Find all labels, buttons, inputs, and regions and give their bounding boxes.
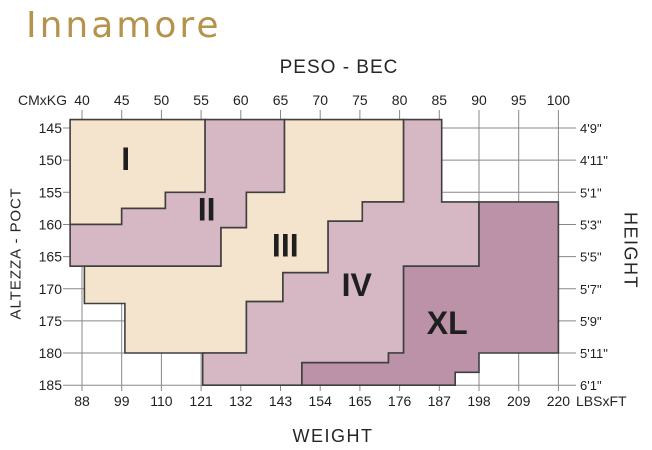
top-tick-label-45: 45 bbox=[114, 92, 130, 108]
bottom-axis-unit-label: LBSxFT bbox=[576, 393, 627, 409]
top-tick-label-95: 95 bbox=[511, 92, 527, 108]
top-tick-label-60: 60 bbox=[233, 92, 249, 108]
right-tick-label-155: 5'1" bbox=[580, 185, 602, 200]
top-tick-label-65: 65 bbox=[273, 92, 289, 108]
left-tick-label-180: 180 bbox=[39, 345, 63, 361]
bottom-tick-label-110: 110 bbox=[150, 393, 173, 409]
bottom-tick-label-220: 220 bbox=[547, 393, 571, 409]
size-chart-page: Innamore PESO - ВЕС CMxKG IIIIIIIVXL4045… bbox=[0, 0, 652, 450]
bottom-tick-label-198: 198 bbox=[467, 393, 491, 409]
left-tick-label-155: 155 bbox=[39, 184, 63, 200]
left-tick-label-160: 160 bbox=[39, 216, 63, 232]
right-tick-label-160: 5'3" bbox=[580, 217, 602, 232]
bottom-tick-label-88: 88 bbox=[74, 393, 90, 409]
left-tick-label-170: 170 bbox=[39, 281, 63, 297]
right-tick-label-150: 4'11" bbox=[580, 153, 608, 168]
top-tick-label-55: 55 bbox=[193, 92, 209, 108]
bottom-tick-label-187: 187 bbox=[428, 393, 452, 409]
size-region-label-I: I bbox=[121, 141, 130, 177]
top-tick-label-40: 40 bbox=[74, 92, 90, 108]
left-tick-label-175: 175 bbox=[39, 313, 63, 329]
right-tick-label-185: 6'1" bbox=[580, 378, 602, 393]
right-tick-label-145: 4'9" bbox=[580, 121, 602, 136]
bottom-tick-label-165: 165 bbox=[348, 393, 372, 409]
bottom-tick-label-121: 121 bbox=[189, 393, 213, 409]
right-axis-title: HEIGHT bbox=[620, 191, 641, 311]
top-tick-label-100: 100 bbox=[547, 92, 571, 108]
bottom-axis-title: WEIGHT bbox=[258, 426, 408, 447]
size-grid-plot: IIIIIIIVXL404550556065707580859095100889… bbox=[0, 0, 652, 450]
bottom-tick-label-99: 99 bbox=[114, 393, 130, 409]
top-tick-label-50: 50 bbox=[154, 92, 170, 108]
bottom-tick-label-154: 154 bbox=[309, 393, 333, 409]
right-tick-label-170: 5'7" bbox=[580, 282, 602, 297]
left-tick-label-145: 145 bbox=[39, 120, 63, 136]
left-tick-label-165: 165 bbox=[39, 249, 63, 265]
top-tick-label-90: 90 bbox=[471, 92, 487, 108]
top-tick-label-75: 75 bbox=[352, 92, 368, 108]
left-tick-label-150: 150 bbox=[39, 152, 63, 168]
top-tick-label-85: 85 bbox=[432, 92, 448, 108]
size-region-label-XL: XL bbox=[427, 305, 468, 341]
size-region-label-III: III bbox=[272, 228, 299, 264]
size-region-label-IV: IV bbox=[342, 267, 373, 303]
bottom-tick-label-176: 176 bbox=[388, 393, 412, 409]
top-tick-label-70: 70 bbox=[312, 92, 328, 108]
left-tick-label-185: 185 bbox=[39, 377, 63, 393]
size-region-label-II: II bbox=[198, 192, 216, 228]
right-tick-label-165: 5'5" bbox=[580, 250, 602, 265]
top-tick-label-80: 80 bbox=[392, 92, 408, 108]
right-tick-label-180: 5'11" bbox=[580, 346, 608, 361]
right-tick-label-175: 5'9" bbox=[580, 314, 602, 329]
bottom-tick-label-132: 132 bbox=[229, 393, 253, 409]
bottom-tick-label-143: 143 bbox=[269, 393, 293, 409]
left-axis-title: ALTEZZA - РОСТ bbox=[8, 169, 25, 339]
bottom-tick-label-209: 209 bbox=[507, 393, 531, 409]
